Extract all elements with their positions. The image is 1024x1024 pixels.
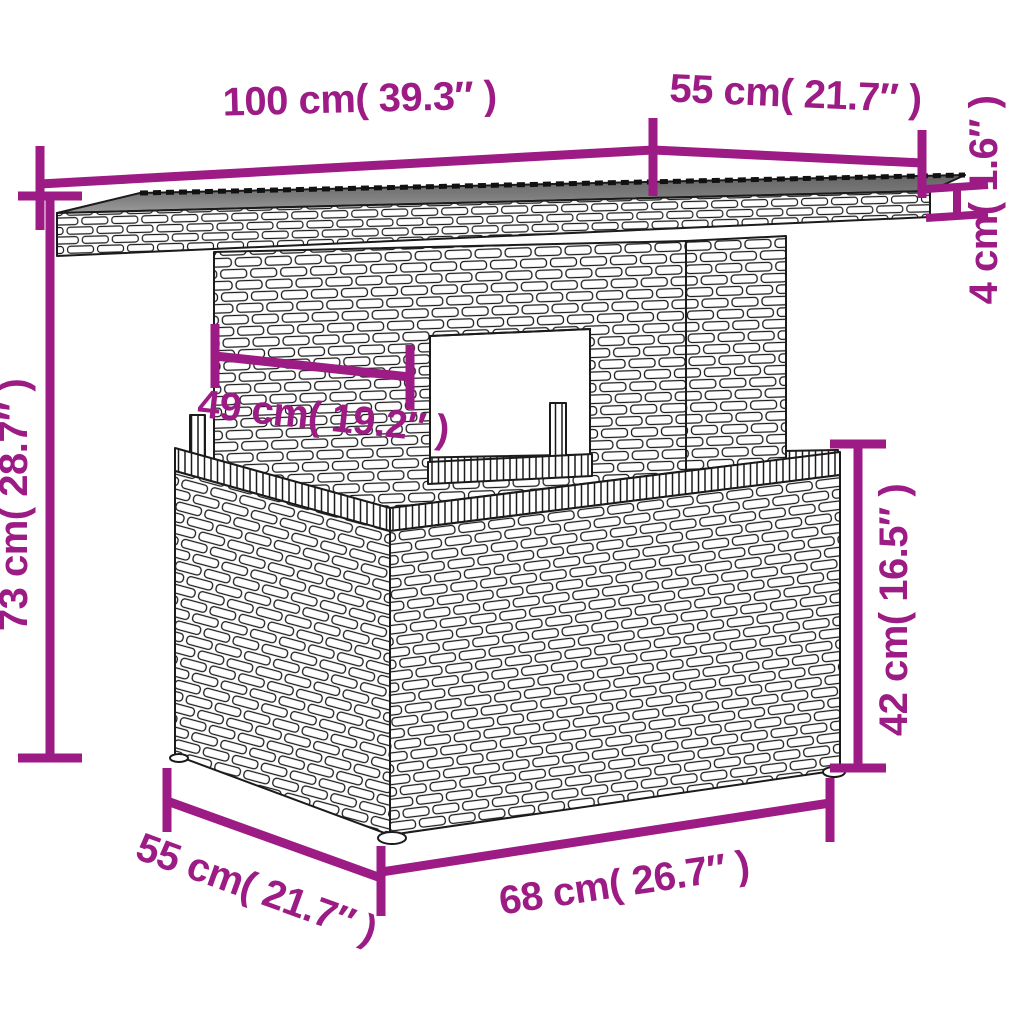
base-left-face	[175, 471, 390, 835]
dim-label-base-width: 68 cm( 26.7″ )	[496, 843, 752, 924]
dim-total-height: 73 cm( 28.7″ )	[0, 196, 82, 758]
base-back-post-middle	[550, 403, 566, 463]
base-foot-left	[170, 754, 188, 762]
dim-label-top-depth: 55 cm( 21.7″ )	[669, 67, 923, 122]
dim-top-thickness: 4 cm( 1.6″ )	[926, 96, 1006, 305]
base-foot-front	[378, 832, 406, 844]
dim-label-base-height: 42 cm( 16.5″ )	[872, 484, 916, 736]
dim-base-height: 42 cm( 16.5″ )	[830, 444, 916, 768]
dim-label-total-height: 73 cm( 28.7″ )	[0, 379, 36, 631]
pedestal-side-face	[686, 236, 786, 471]
dim-label-base-depth: 55 cm( 21.7″ )	[130, 825, 382, 953]
dim-line	[40, 150, 653, 184]
table-drawing	[57, 175, 965, 844]
dim-line	[653, 150, 922, 163]
dim-label-top-thickness: 4 cm( 1.6″ )	[962, 96, 1006, 305]
dimension-diagram-canvas: 100 cm( 39.3″ ) 55 cm( 21.7″ ) 4 cm( 1.6…	[0, 0, 1024, 1024]
dim-label-top-width: 100 cm( 39.3″ )	[222, 73, 497, 124]
base-right-face	[390, 475, 840, 835]
